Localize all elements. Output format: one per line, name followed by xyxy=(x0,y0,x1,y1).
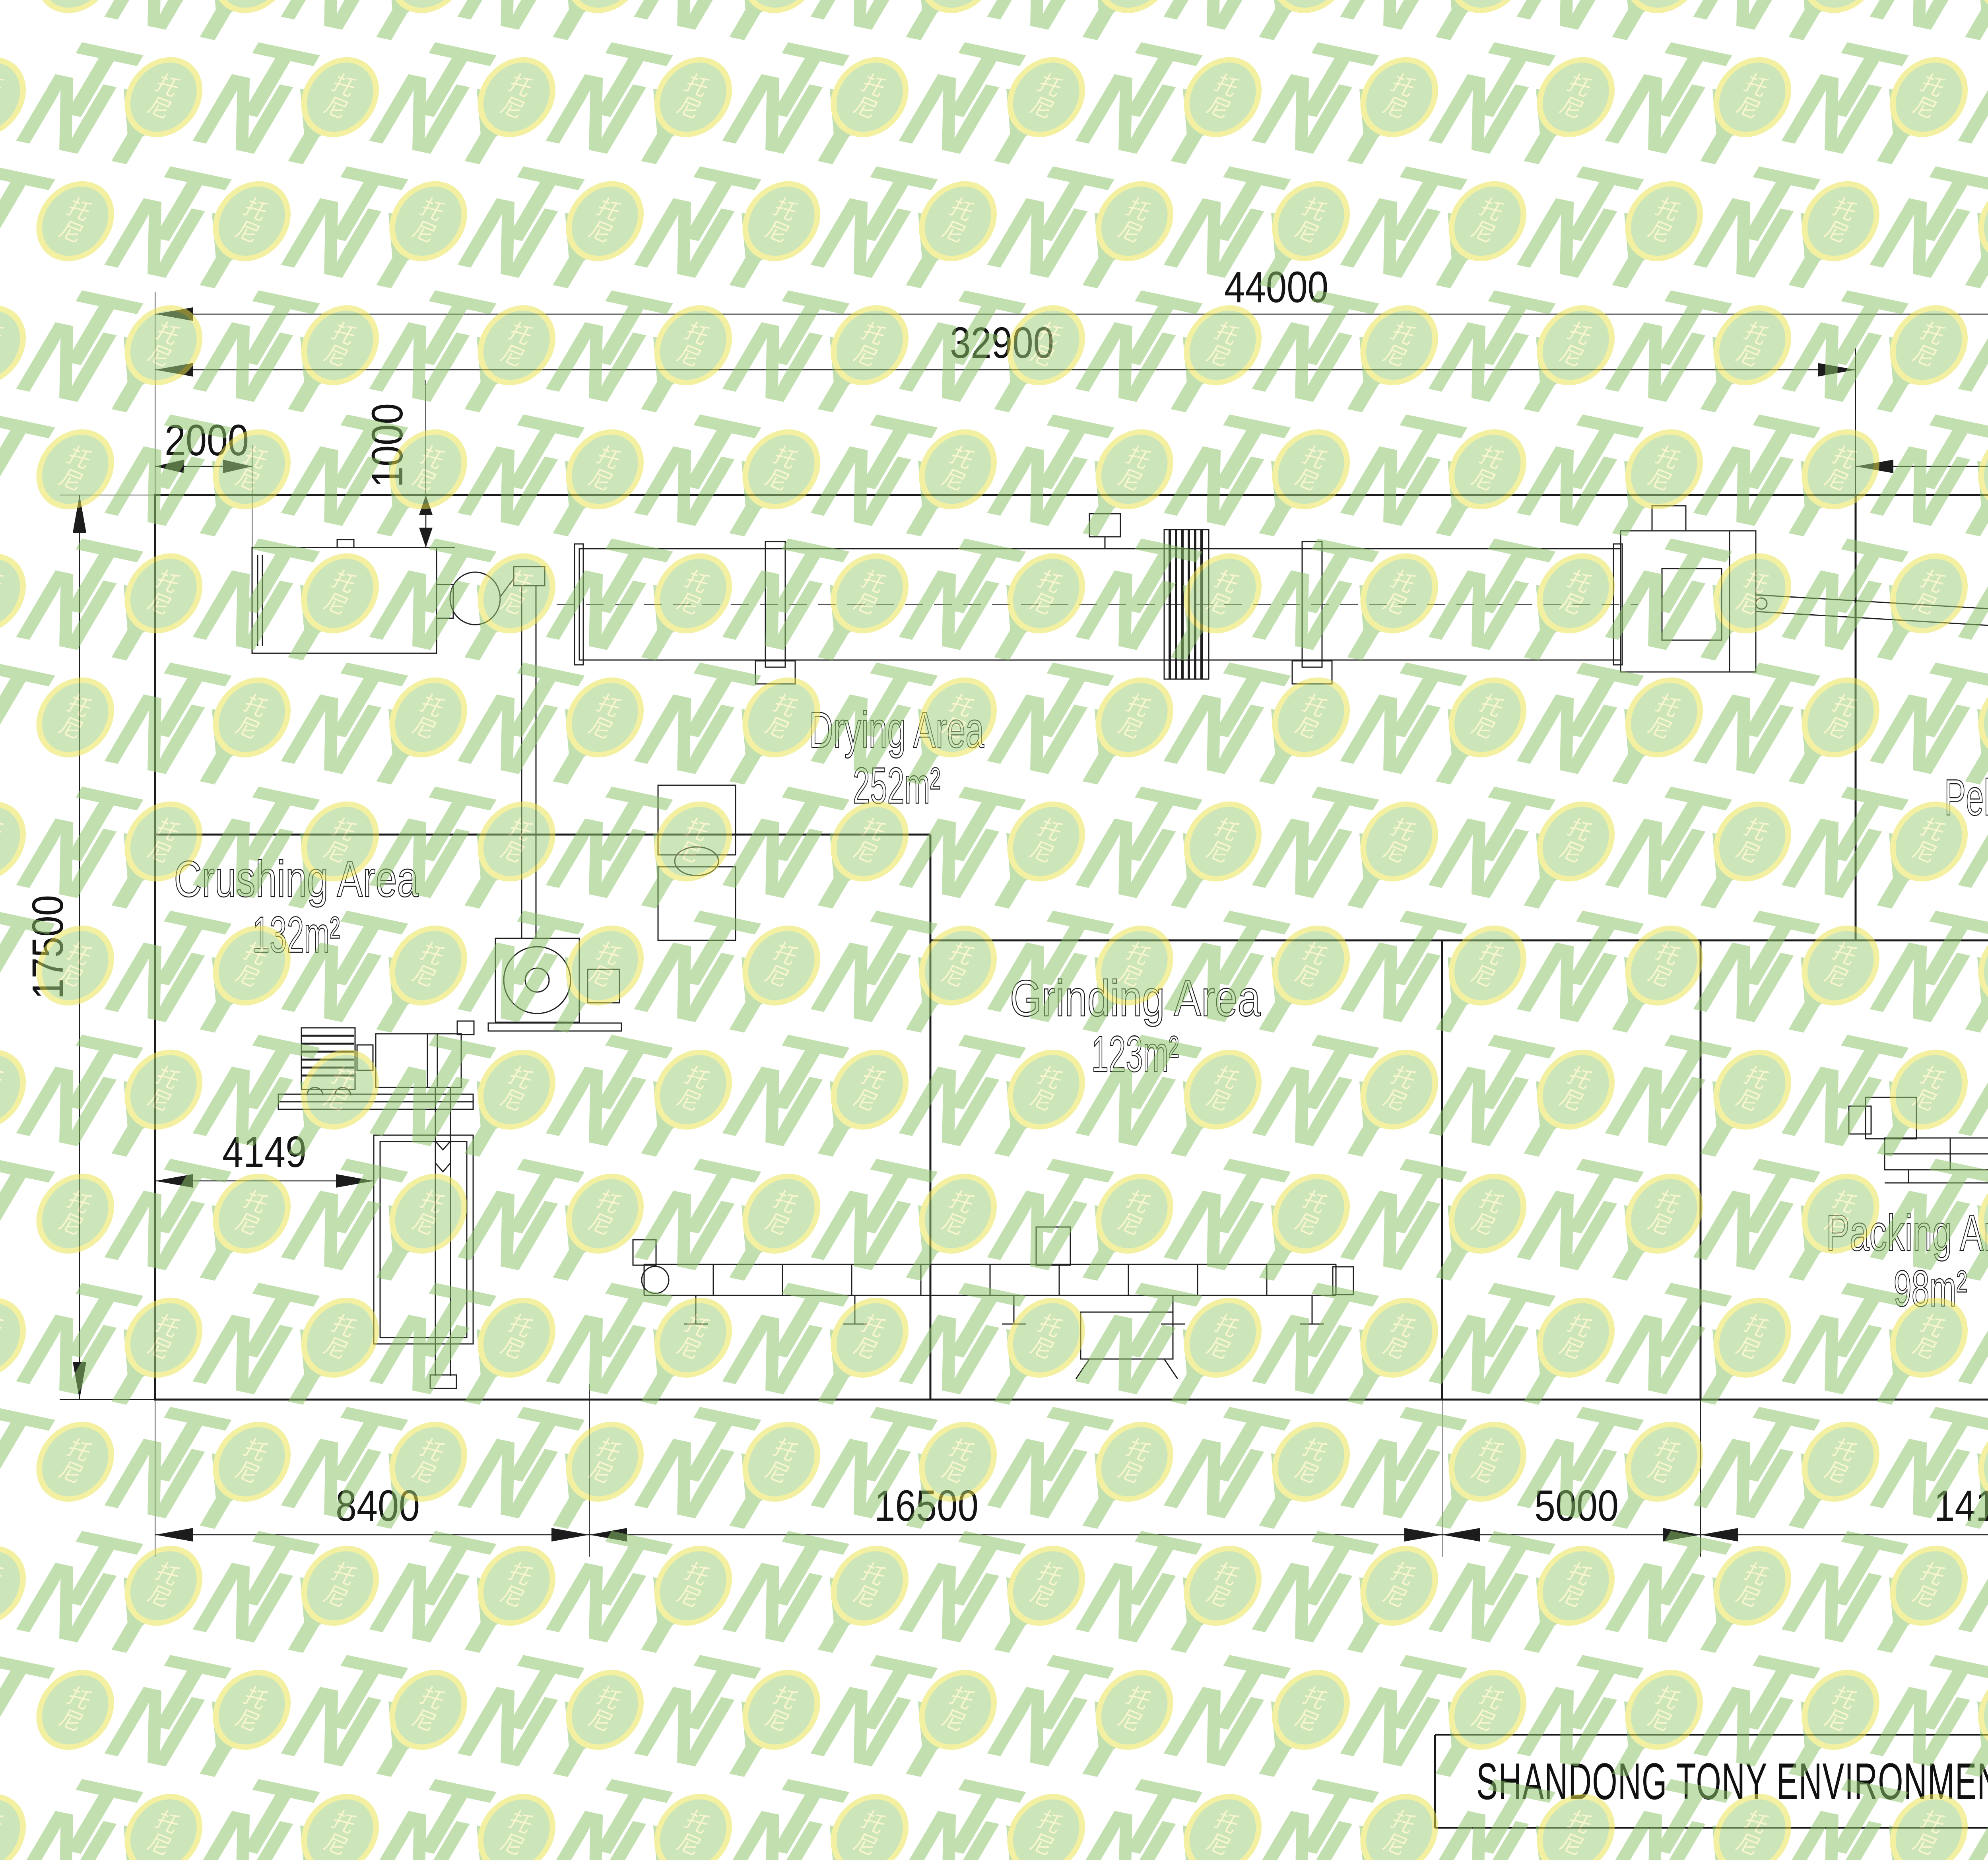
dryer-discharge-housing xyxy=(1621,506,1756,672)
label-crushing-size: 132m² xyxy=(252,907,340,963)
pellet-infeed-conveyor xyxy=(1756,595,1988,636)
dim-bay-packing: 14100 xyxy=(1934,1481,1988,1530)
dim-feeder-offset: 1000 xyxy=(363,403,412,487)
packing-conveyor xyxy=(1885,1138,1988,1183)
cad-floor-plan-page: 44000 32900 2000 11100 1000 17500 8500 9… xyxy=(0,0,1988,1860)
dryer-infeed-elevator xyxy=(501,567,545,938)
label-packing-size: 98m² xyxy=(1894,1260,1967,1317)
rotary-dryer-drum xyxy=(557,544,1638,665)
dryer-riding-station-1 xyxy=(755,542,795,684)
gear-guard-box xyxy=(1089,514,1120,549)
dim-drying-width: 32900 xyxy=(950,318,1054,367)
dim-crusher-offset: 4149 xyxy=(222,1128,307,1177)
company-name: SHANDONG TONY ENVIRONMENTAL PROTECTION S… xyxy=(1476,1752,1988,1810)
rotary-valve xyxy=(437,572,500,625)
crusher-motor xyxy=(301,1028,355,1095)
dryer-riding-station-2 xyxy=(1292,542,1332,684)
floor-plan-drawing: 44000 32900 2000 11100 1000 17500 8500 9… xyxy=(0,0,1988,1860)
grinding-conveyor xyxy=(633,1227,1353,1379)
dryer-girth-gear xyxy=(1164,530,1209,679)
dim-overall-width: 44000 xyxy=(1224,263,1328,312)
label-grinding-area: Grinding Area xyxy=(1010,970,1261,1027)
area-labels: Drying Area 252m² Crushing Area 132m² Gr… xyxy=(174,702,1988,1317)
dimension-lines xyxy=(60,292,1988,1557)
packing-infeed-unit xyxy=(1849,1097,1916,1139)
label-pelleting-area: Pelleting&Cooling Area xyxy=(1944,769,1988,826)
label-crushing-area: Crushing Area xyxy=(174,851,419,908)
crusher xyxy=(278,1021,474,1109)
dim-left-offset: 2000 xyxy=(165,416,249,465)
label-packing-area: Packing Area xyxy=(1826,1205,1988,1262)
feeder-hopper xyxy=(252,540,437,653)
dim-bay-grinding: 16500 xyxy=(874,1481,978,1530)
label-drying-area: Drying Area xyxy=(809,702,984,759)
dim-building-depth: 17500 xyxy=(23,895,72,999)
dim-bay-crushing: 8400 xyxy=(336,1481,420,1530)
label-drying-size: 252m² xyxy=(853,757,940,814)
dust-collector xyxy=(658,785,736,940)
dim-bay-corridor: 5000 xyxy=(1534,1481,1619,1530)
crusher-discharge-conveyor xyxy=(430,1087,456,1388)
label-grinding-size: 123m² xyxy=(1091,1026,1179,1083)
hammer-mill-unit xyxy=(488,938,621,1031)
screen-bin xyxy=(374,1135,473,1344)
